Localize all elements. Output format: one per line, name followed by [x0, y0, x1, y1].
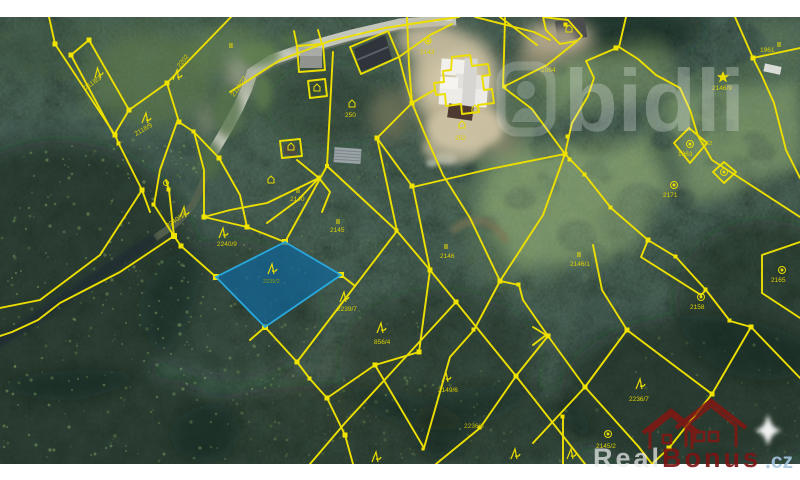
svg-text:2140: 2140 — [290, 196, 305, 203]
svg-text:2239/2: 2239/2 — [263, 279, 280, 285]
svg-text:1963: 1963 — [678, 151, 693, 158]
svg-text:2165: 2165 — [771, 277, 786, 284]
svg-text:II: II — [444, 244, 448, 251]
svg-text:2171: 2171 — [663, 192, 678, 199]
svg-text:2146/1: 2146/1 — [570, 261, 590, 268]
svg-text:856/4: 856/4 — [374, 339, 391, 346]
svg-text:2145: 2145 — [330, 227, 345, 234]
svg-text:bidli: bidli — [564, 51, 745, 150]
svg-text:2236/7: 2236/7 — [629, 396, 649, 403]
svg-text:2149/6: 2149/6 — [438, 387, 458, 394]
svg-text:2158: 2158 — [690, 304, 705, 311]
svg-text:2239/7: 2239/7 — [337, 306, 357, 313]
svg-text:250: 250 — [345, 112, 356, 119]
svg-text:II: II — [777, 42, 781, 49]
svg-text:2236/8: 2236/8 — [464, 423, 484, 430]
svg-text:252: 252 — [455, 135, 466, 142]
svg-text:2240/9: 2240/9 — [217, 241, 237, 248]
svg-text:II: II — [336, 219, 340, 226]
svg-text:Real: Real — [593, 443, 662, 473]
svg-text:.cz: .cz — [765, 450, 793, 473]
svg-text:II: II — [577, 252, 581, 259]
svg-text:II: II — [296, 188, 300, 195]
svg-text:2143: 2143 — [420, 49, 435, 56]
svg-text:Bonus: Bonus — [662, 443, 761, 473]
svg-text:1961: 1961 — [760, 47, 775, 54]
svg-text:II: II — [229, 43, 233, 50]
svg-text:2146: 2146 — [440, 253, 455, 260]
